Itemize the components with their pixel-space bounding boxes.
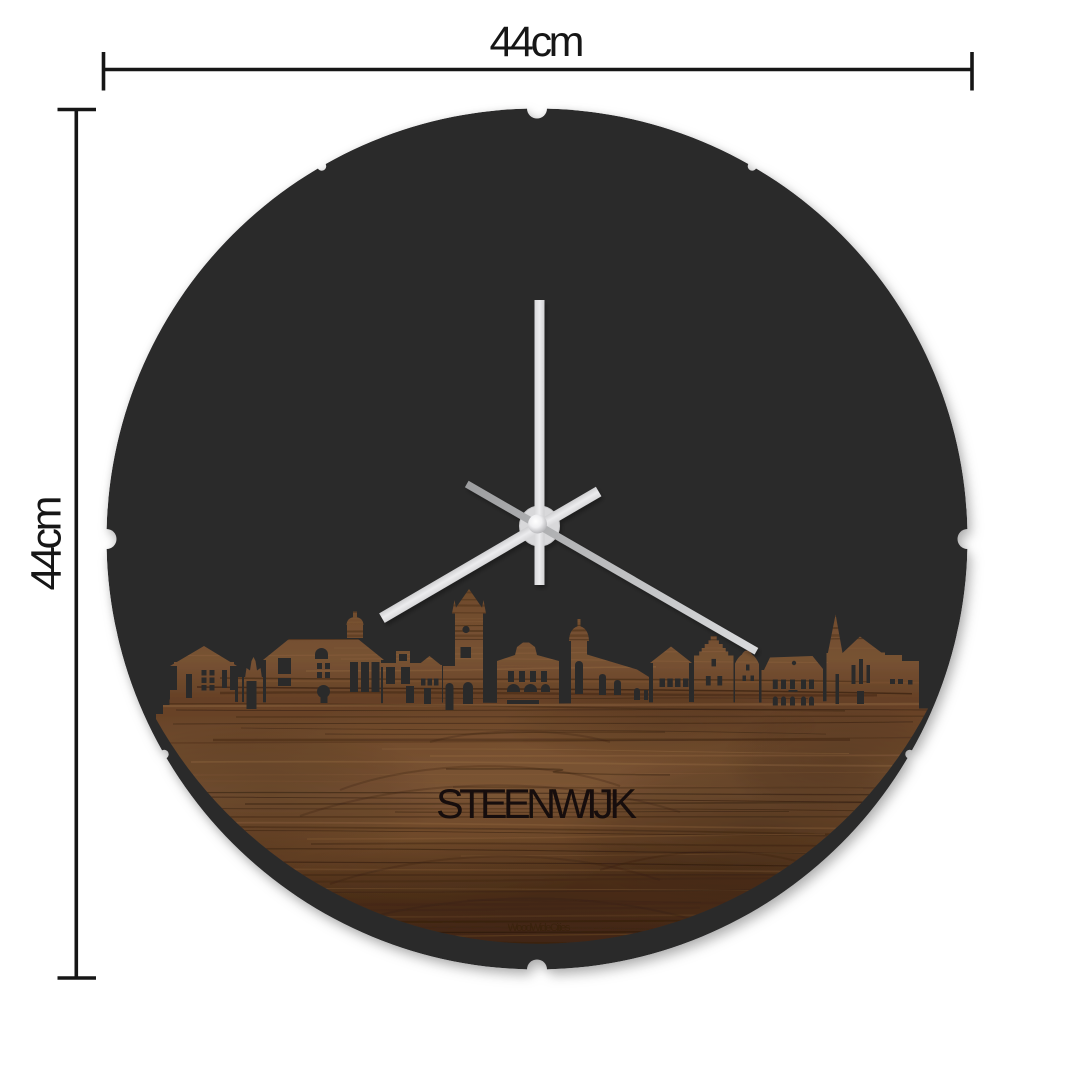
svg-text:STEENWIJK: STEENWIJK bbox=[436, 780, 638, 827]
svg-text:44cm: 44cm bbox=[23, 496, 71, 591]
svg-text:44cm: 44cm bbox=[490, 18, 585, 66]
svg-text:WoodWideCities: WoodWideCities bbox=[508, 922, 572, 934]
